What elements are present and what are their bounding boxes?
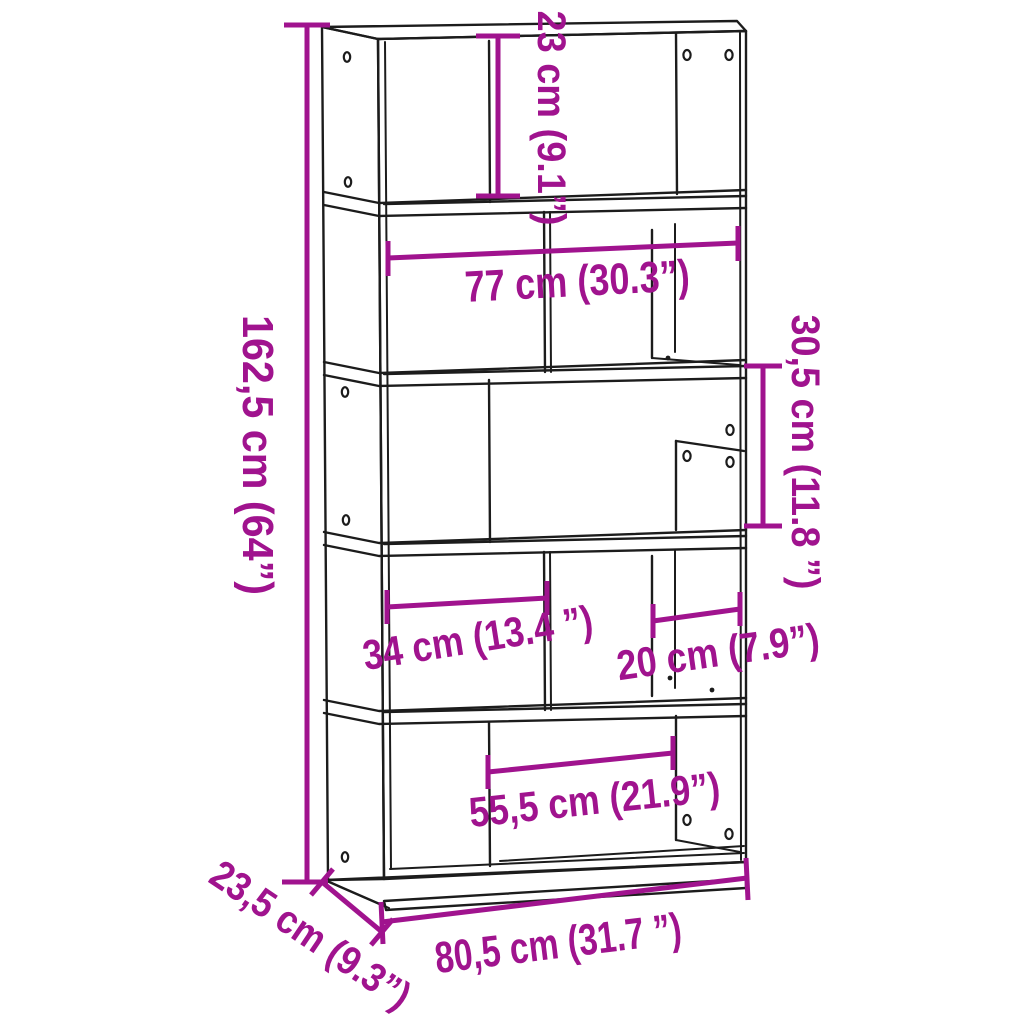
bottom-and-plinth [326,846,746,910]
floor-front-edge [390,853,744,869]
tier-1-divider [489,41,490,202]
screw-hole [345,177,351,187]
dimension-label-right-compartment-width: 20 cm (7.9”) [614,614,823,689]
left-side-panel [322,27,384,880]
right-edge-inner [740,33,741,860]
screw-hole [725,829,732,839]
dimension-label-inner-width: 77 cm (30.3”) [464,251,691,312]
dimension-label-overall-height: 162,5 cm (64”) [233,315,282,595]
bottom-edge [326,862,746,880]
screw-hole [683,815,690,825]
pilot-hole-dot [666,356,671,361]
dimension-label-overall-width: 80,5 cm (31.7 ”) [432,904,684,983]
screw-hole [725,50,732,60]
tier-1-internals [489,33,733,202]
dimension-inner-width: 77 cm (30.3”) [388,226,738,312]
tier-3-divider [489,380,490,542]
screw-hole [344,52,350,62]
dimension-label-bottom-compartment-width: 55,5 cm (21.9”) [467,763,723,836]
screw-hole [726,457,733,467]
side-panel-screw-holes [342,52,351,862]
bookcase-dimension-diagram: 23 cm (9.1”) 77 cm (30.3”) 162,5 cm (64”… [0,0,1024,1024]
screw-hole [683,451,690,461]
screw-hole [342,387,348,397]
dimension-left-compartment-width: 34 cm (13.4 ”) [359,581,595,679]
shelf-4 [324,698,746,724]
screw-hole [342,852,348,862]
dimension-label-top-tier-inner-height: 23 cm (9.1”) [529,11,573,226]
dimension-overall-height: 162,5 cm (64”) [233,25,330,882]
tier-3-internals [489,380,744,542]
dimension-right-compartment-width: 20 cm (7.9”) [614,592,823,689]
screw-hole [343,515,349,525]
tier-1-back-panel-edge [676,33,677,194]
dimension-label-tier-height: 30,5 cm (11.8 ”) [783,315,827,590]
diagram-svg: 23 cm (9.1”) 77 cm (30.3”) 162,5 cm (64”… [0,0,1024,1024]
pilot-hole-dot [710,688,715,693]
tier-3-back-panel-top [676,441,744,451]
front-left-edge-inner [385,42,391,869]
shelf-3 [324,530,746,556]
screw-hole [726,425,733,435]
dimension-tier-height: 30,5 cm (11.8 ”) [744,315,827,590]
screw-hole [683,50,690,60]
